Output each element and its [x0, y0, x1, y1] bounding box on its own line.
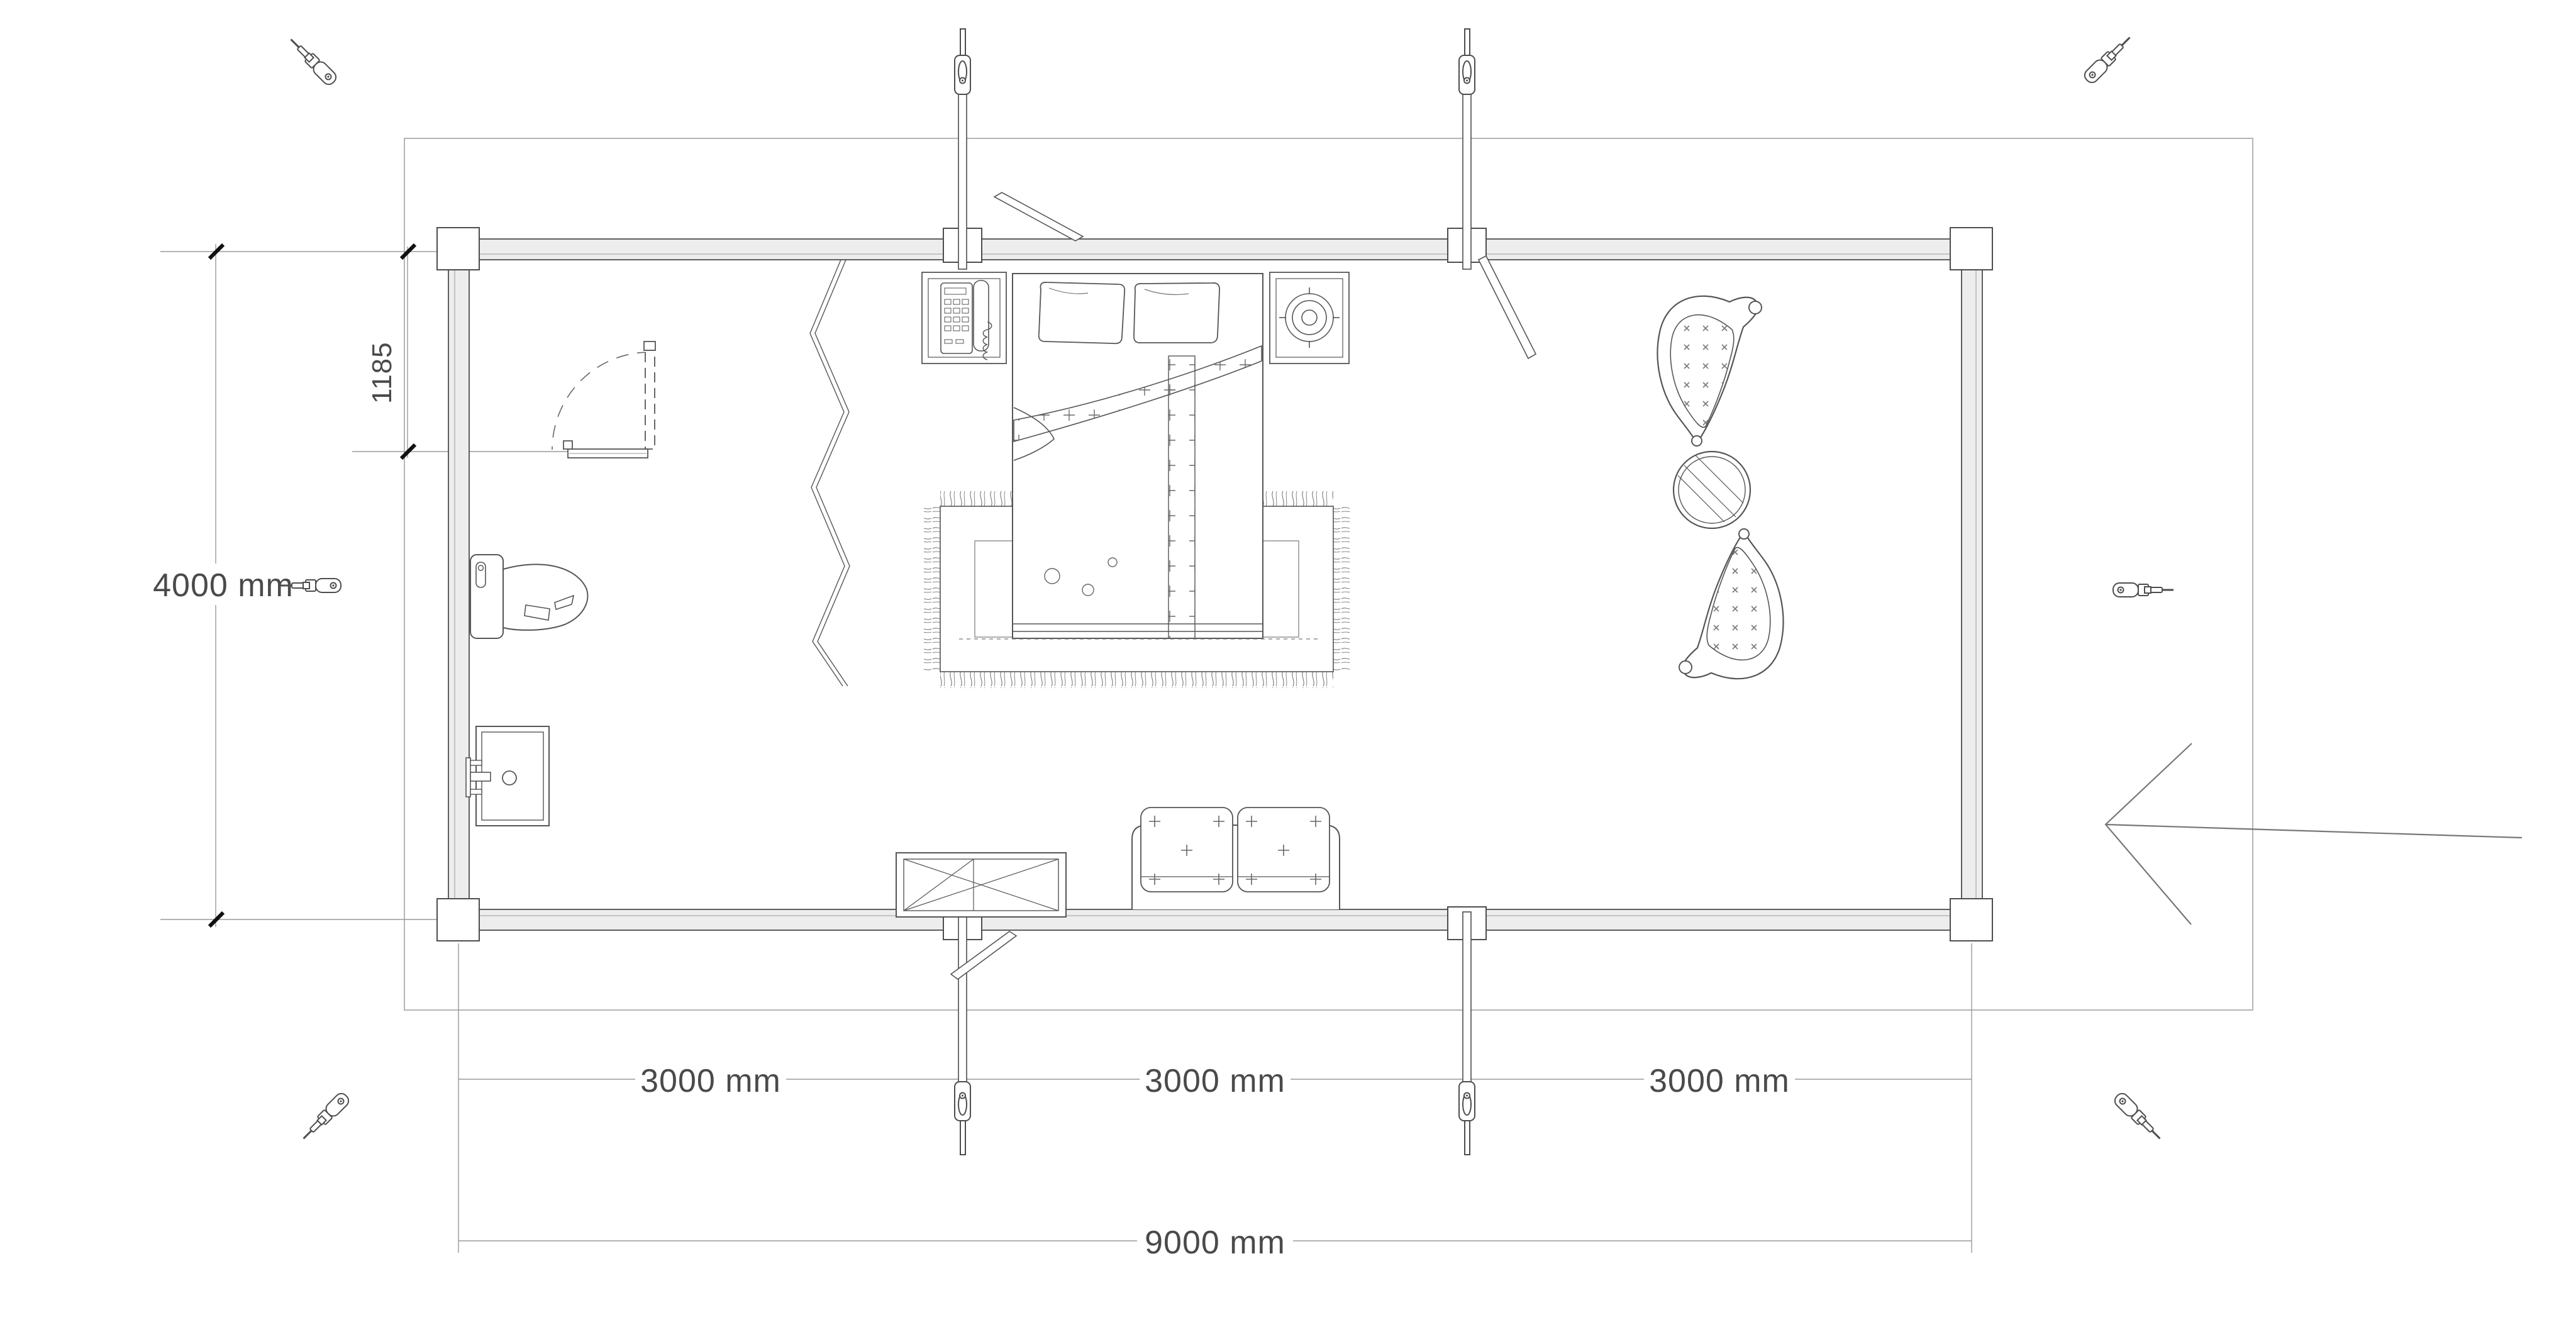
- floor-plan-canvas: 4000 mm 1185 3000 mm 3000 mm 3000 mm 900…: [0, 0, 2576, 1327]
- lounge-chair: [1657, 296, 1762, 446]
- leaning-plank: [994, 192, 1083, 241]
- screwdriver-icon: [286, 35, 338, 87]
- turnbuckle-icon: [1459, 55, 1475, 94]
- bay3-label: 3000 mm: [1649, 1063, 1790, 1099]
- screwdriver-icon: [2082, 33, 2135, 85]
- pillow: [1134, 283, 1219, 343]
- folding-screen: [810, 260, 850, 686]
- faucet-icon: [466, 758, 470, 797]
- bay2-label: 3000 mm: [1145, 1063, 1285, 1099]
- door-hinge: [563, 441, 572, 449]
- dimension-door-offset-label: 1185: [367, 341, 397, 404]
- total-width-label: 9000 mm: [1145, 1224, 1285, 1261]
- tv-cabinet: [896, 853, 1066, 917]
- telephone-icon: [941, 280, 992, 360]
- screwdriver-icon: [2112, 1091, 2165, 1143]
- floor-plan-page: 4000 mm 1185 3000 mm 3000 mm 3000 mm 900…: [0, 0, 2576, 1327]
- bathroom-door: [552, 341, 655, 458]
- turnbuckle-icon: [955, 1082, 970, 1121]
- pillow: [1039, 282, 1125, 343]
- nightstand-telephone: [922, 272, 1006, 364]
- door-hinge: [644, 341, 655, 350]
- dimension-depth-label: 4000 mm: [153, 567, 294, 604]
- round-glass-table: [1674, 452, 1750, 528]
- screwdriver-icon: [2113, 583, 2173, 597]
- lounge-chair: [1679, 529, 1784, 679]
- drain-icon: [502, 771, 516, 785]
- two-seat-sofa: [1132, 808, 1340, 909]
- turnbuckle-icon: [1459, 1082, 1475, 1121]
- blanket-stripe: [1169, 356, 1195, 638]
- toilet: [470, 555, 587, 638]
- bay1-label: 3000 mm: [640, 1063, 781, 1099]
- screwdriver-icon: [299, 1091, 351, 1143]
- entrance-arrow-icon: [2106, 743, 2522, 924]
- leaning-plank: [1479, 256, 1536, 358]
- washbasin: [466, 726, 549, 826]
- nightstand-burner: [1270, 272, 1349, 364]
- turnbuckle-icon: [955, 55, 970, 94]
